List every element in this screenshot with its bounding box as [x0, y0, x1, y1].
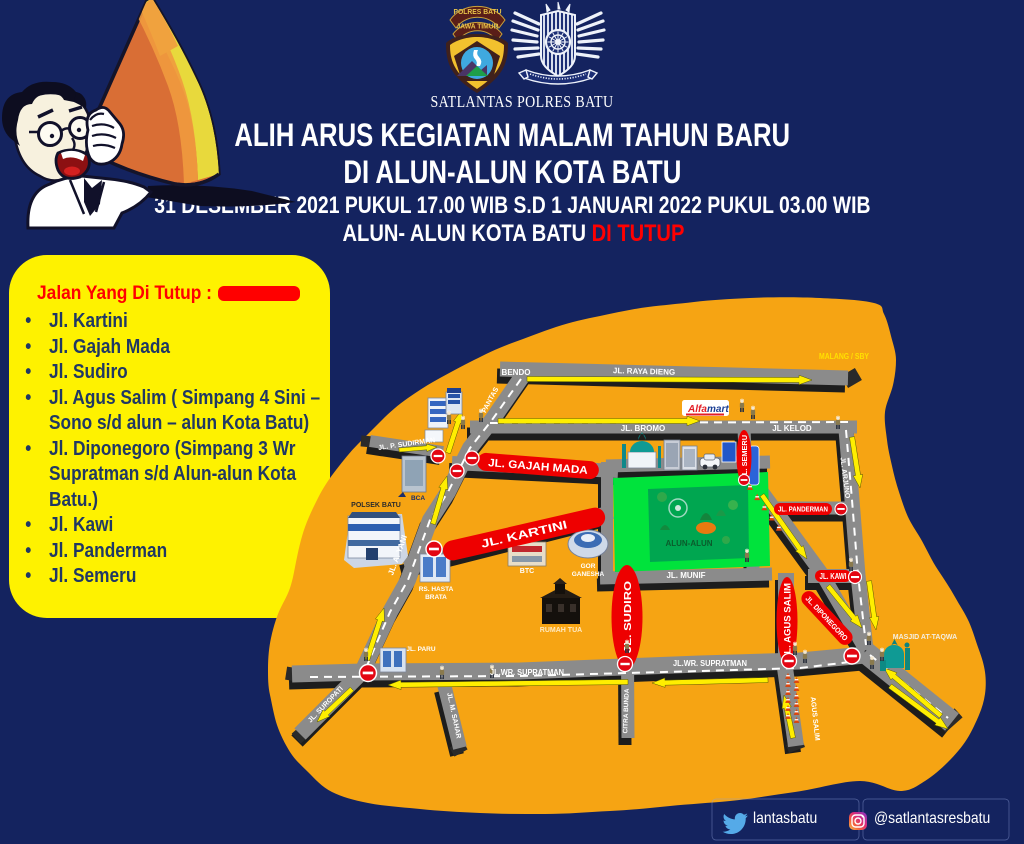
svg-text:POLSEK BATU: POLSEK BATU	[351, 502, 401, 509]
svg-text:JL KELOD: JL KELOD	[772, 424, 812, 433]
svg-text:ALUN-ALUN: ALUN-ALUN	[665, 539, 712, 548]
svg-text:JL. PARU: JL. PARU	[406, 646, 435, 653]
svg-text:JL.WR. SUPRATMAN: JL.WR. SUPRATMAN	[673, 659, 747, 668]
svg-text:POLRES BATU: POLRES BATU	[454, 9, 502, 16]
svg-text:mart: mart	[707, 404, 729, 415]
svg-text:BCA: BCA	[411, 495, 425, 502]
svg-text:JL. SEMERU: JL. SEMERU	[742, 435, 749, 479]
svg-text:JL. PANDERMAN: JL. PANDERMAN	[778, 505, 828, 514]
svg-text:BTC: BTC	[520, 568, 534, 575]
svg-text:JAWA TIMUR: JAWA TIMUR	[457, 24, 499, 31]
svg-text:Alfa: Alfa	[687, 404, 707, 415]
svg-text:GOR: GOR	[581, 563, 596, 570]
svg-text:JL. KAWI: JL. KAWI	[820, 572, 847, 581]
svg-text:GANESHA: GANESHA	[572, 571, 605, 578]
svg-text:JL.WR. SUPRATMAN: JL.WR. SUPRATMAN	[490, 668, 564, 677]
svg-text:JL. BROMO: JL. BROMO	[621, 424, 665, 433]
svg-text:RS. HASTA: RS. HASTA	[419, 586, 454, 593]
svg-text:MASJID AT-TAQWA: MASJID AT-TAQWA	[893, 634, 957, 641]
svg-text:MALANG / SBY: MALANG / SBY	[819, 352, 870, 361]
svg-text:BENDO: BENDO	[502, 368, 531, 377]
svg-text:JL. RAYA DIENG: JL. RAYA DIENG	[613, 366, 675, 377]
svg-text:BRATA: BRATA	[425, 594, 447, 601]
svg-text:JL. MUNIF: JL. MUNIF	[666, 571, 705, 580]
svg-text:RUMAH TUA: RUMAH TUA	[540, 627, 582, 634]
svg-text:JL. AGUS SALIM: JL. AGUS SALIM	[783, 583, 793, 659]
